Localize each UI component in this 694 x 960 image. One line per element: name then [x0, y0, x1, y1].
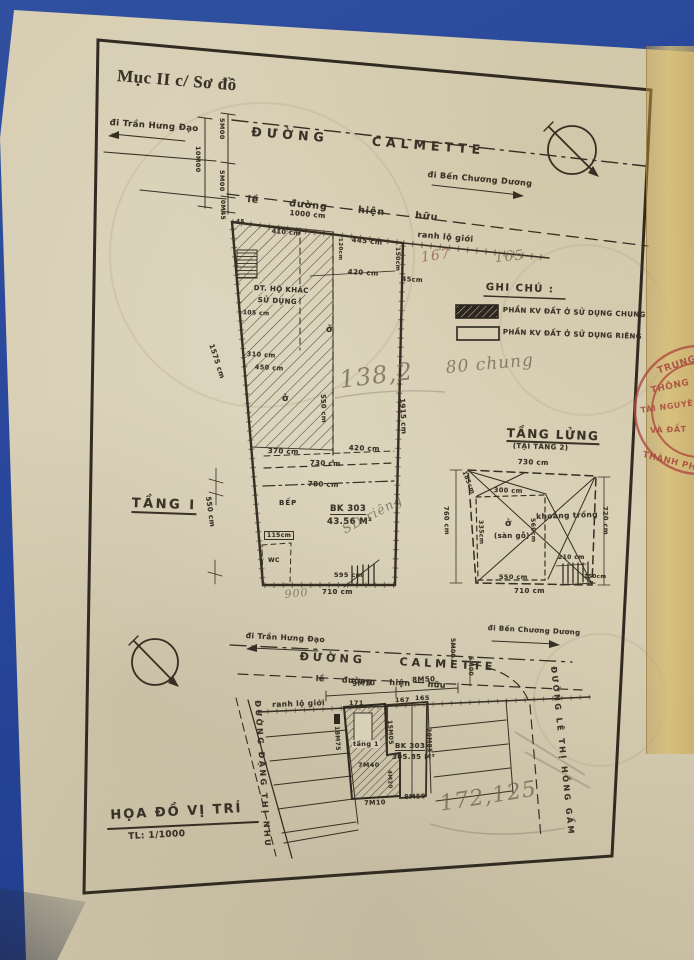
f1-kitchen-label: BẾP	[279, 499, 297, 507]
map-unit-area: 305.85 M²	[392, 753, 435, 761]
f1-dim-in-b: 450 cm	[255, 363, 284, 372]
f1-dim-low-b: 420 cm	[349, 444, 380, 453]
north-arrow-top	[544, 122, 599, 177]
map-plot-171: 171	[349, 699, 364, 707]
f1-room-b: ở	[282, 394, 289, 404]
f1-dim-wc-w: 115cm	[264, 531, 294, 540]
mezz-dim-bot-c: 710 cm	[514, 587, 545, 595]
floor1-title: TẦNG I	[131, 496, 196, 515]
f1-dim-in-a: 310 cm	[247, 350, 276, 359]
map-dim-k: 8M50	[404, 792, 426, 801]
f1-dim-low-c: 730 cm	[310, 459, 341, 468]
dim-street-offset: 0M45	[219, 200, 226, 220]
map-dim-c: 5M00	[449, 638, 456, 658]
map-dim-d: 5M00	[467, 656, 474, 676]
scanned-cadastral-document: Mục II c/ Sơ đồ đi Trần Hưng Đạo ĐƯỜNG C…	[0, 0, 694, 960]
mezz-dim-bot-b: 150cm	[584, 574, 606, 580]
map-boundary-label: ranh lộ giới	[272, 698, 325, 709]
f1-dim-bot-b: 710 cm	[322, 588, 353, 596]
pencil-note-900: 900	[284, 586, 309, 601]
f1-dim-mid-a: 420 cm	[348, 268, 379, 278]
map-dim-a: 9M70	[352, 679, 375, 688]
red-stamp	[600, 320, 694, 520]
map-dim-j: 7M10	[364, 798, 386, 807]
map-dim-i: 4M20	[386, 770, 393, 789]
map-dim-b: 8M50	[412, 675, 435, 684]
mezz-dim-room-h: 335cm	[477, 520, 485, 545]
map-dim-g: 7M40	[358, 761, 380, 769]
f1-wc-label: WC	[268, 557, 280, 564]
mezz-dim-stair: 210 cm	[558, 554, 585, 561]
mezz-dim-top: 730 cm	[518, 458, 549, 467]
f1-dim-edge-s: 120cm	[337, 238, 343, 260]
f1-dim-in-v: 550 cm	[319, 394, 328, 423]
f1-dim-low-a: 370 cm	[268, 447, 299, 456]
dim-street-total: 10M00	[194, 146, 202, 173]
map-dim-f: 15M05	[386, 720, 394, 745]
mezz-dim-left: 760 cm	[442, 506, 451, 535]
mezz-dim-room-w: 560cm	[529, 518, 537, 543]
f1-dim-edge-r: 150cm	[394, 247, 401, 271]
stamp-line-4: VÀ ĐẤT	[650, 425, 687, 435]
map-dim-e: 18M75	[333, 726, 341, 751]
dim-street-half-a: 5M00	[218, 118, 226, 140]
dim-street-half-b: 5M00	[218, 170, 226, 192]
map-unit-code: BK 303	[395, 742, 425, 751]
site-map-lines	[108, 640, 590, 858]
map-plot-167: 167	[395, 696, 410, 704]
f1-room-a: ở	[326, 325, 333, 335]
f1-dim-low-d: 780 cm	[308, 480, 339, 489]
f1-dim-corner: 45	[235, 218, 245, 226]
mezz-room: ở	[505, 519, 512, 529]
map-plot-165: 165	[415, 694, 430, 702]
map-dim-h: 20M85	[425, 728, 433, 753]
mezz-dim-in-top: 300 cm	[494, 486, 523, 495]
mezz-dim-bot-a: 550 cm	[499, 573, 528, 581]
f1-dim-room-w: 105 cm	[243, 309, 270, 317]
f1-dim-mid-b: 45cm	[402, 275, 424, 284]
north-arrow-bottom	[129, 636, 179, 687]
map-floor-label: tầng 1	[352, 740, 380, 748]
legend-title: GHI CHÚ :	[486, 282, 555, 295]
f1-dim-bot-a: 595 cm	[334, 571, 363, 579]
pencil-note-165: 165	[494, 247, 525, 266]
mezz-room-note: (sàn gỗ)	[494, 532, 530, 540]
